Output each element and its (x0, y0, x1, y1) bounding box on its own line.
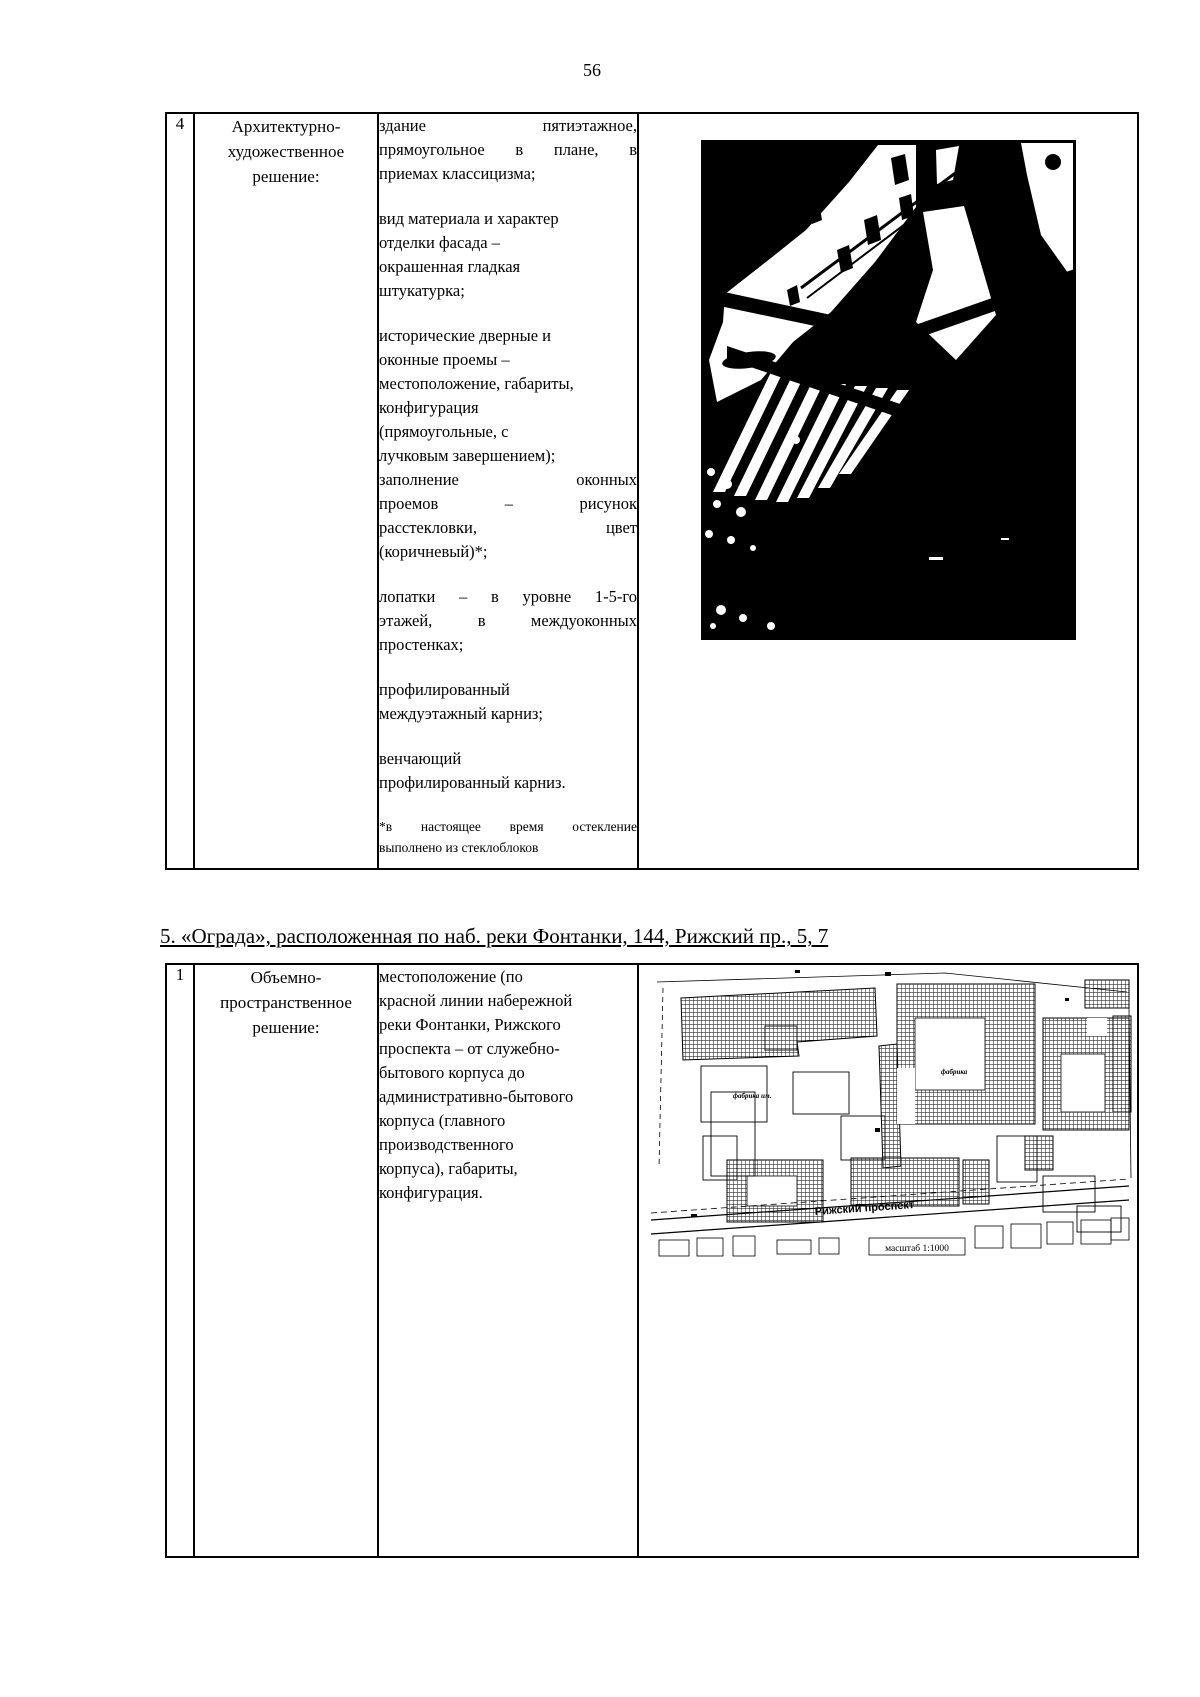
text-line: профилированный (379, 678, 637, 702)
requirements-text-cell: местоположение (покрасной линии набережн… (378, 964, 638, 1557)
text-line: штукатурка; (379, 279, 637, 303)
text-line: решение: (195, 1015, 377, 1040)
text-line: заполнение оконных (379, 468, 637, 492)
paragraph: местоположение (покрасной линии набережн… (379, 965, 637, 1205)
text-line: местоположение, габариты, (379, 372, 637, 396)
paragraph: вид материала и характеротделки фасада –… (379, 207, 637, 303)
text-line: пространственное (195, 990, 377, 1015)
table-row: 4 Архитектурно-художественноерешение: зд… (166, 113, 1138, 869)
text-line: вид материала и характер (379, 207, 637, 231)
row-label-cell: Архитектурно-художественноерешение: (194, 113, 378, 869)
text-line: профилированный карниз. (379, 771, 637, 795)
requirements-paragraphs: здание пятиэтажное,прямоугольное в плане… (379, 114, 637, 795)
text-line: (прямоугольные, с (379, 420, 637, 444)
text-line: здание пятиэтажное, (379, 114, 637, 138)
text-line: конфигурация. (379, 1181, 637, 1205)
text-line: прямоугольное в плане, в (379, 138, 637, 162)
section-heading: 5. «Ограда», расположенная по наб. реки … (160, 924, 828, 949)
text-line: корпуса), габариты, (379, 1157, 637, 1181)
page-number: 56 (0, 60, 1184, 81)
requirements-text-cell: здание пятиэтажное,прямоугольное в плане… (378, 113, 638, 869)
text-line: решение: (195, 164, 377, 189)
text-line: Объемно- (195, 965, 377, 990)
text-line: красной линии набережной (379, 989, 637, 1013)
row-label-cell: Объемно-пространственноерешение: (194, 964, 378, 1557)
text-line: проспекта – от служебно- (379, 1037, 637, 1061)
facade-photo (701, 140, 1076, 640)
text-line: оконные проемы – (379, 348, 637, 372)
text-line: производственного (379, 1133, 637, 1157)
text-line: (коричневый)*; (379, 540, 637, 564)
paragraph: профилированныймеждуэтажный карниз; (379, 678, 637, 726)
text-line: простенках; (379, 633, 637, 657)
building-label-left: фабрика им. (733, 1092, 772, 1100)
row-number-cell: 4 (166, 113, 194, 869)
paragraph: здание пятиэтажное,прямоугольное в плане… (379, 114, 637, 186)
text-line: реки Фонтанки, Рижского (379, 1013, 637, 1037)
photo-cell (638, 113, 1138, 869)
text-line: расстекловки, цвет (379, 516, 637, 540)
table-row: 1 Объемно-пространственноерешение: место… (166, 964, 1138, 1557)
text-line: корпуса (главного (379, 1109, 637, 1133)
text-line: отделки фасада – (379, 231, 637, 255)
text-line: окрашенная гладкая (379, 255, 637, 279)
site-plan-map: Рижский проспект масштаб 1:1000 (645, 968, 1133, 1264)
text-line: административно-бытового (379, 1085, 637, 1109)
text-line: лучковым завершением); (379, 444, 637, 468)
text-line: венчающий (379, 747, 637, 771)
text-line: Архитектурно- (195, 114, 377, 139)
text-line: выполнено из стеклоблоков (379, 837, 637, 858)
footnote: *в настоящее время остеклениевыполнено и… (379, 816, 637, 858)
text-line: исторические дверные и (379, 324, 637, 348)
text-line: проемов – рисунок (379, 492, 637, 516)
map-cell: Рижский проспект масштаб 1:1000 (638, 964, 1138, 1557)
text-line: конфигурация (379, 396, 637, 420)
text-line: лопатки – в уровне 1-5-го (379, 585, 637, 609)
scale-label: масштаб 1:1000 (885, 1243, 949, 1254)
paragraph: исторические дверные иоконные проемы –ме… (379, 324, 637, 564)
document-page: { "page": { "number": "56" }, "colors": … (0, 0, 1200, 1697)
text-line: этажей, в междуоконных (379, 609, 637, 633)
table-architectural-solution: 4 Архитектурно-художественноерешение: зд… (165, 112, 1139, 870)
text-line: художественное (195, 139, 377, 164)
paragraph: венчающийпрофилированный карниз. (379, 747, 637, 795)
text-line: *в настоящее время остекление (379, 816, 637, 837)
row-number-cell: 1 (166, 964, 194, 1557)
table-fence-solution: 1 Объемно-пространственноерешение: место… (165, 963, 1139, 1558)
building-label-center: фабрика (941, 1068, 968, 1076)
text-line: приемах классицизма; (379, 162, 637, 186)
text-line: местоположение (по (379, 965, 637, 989)
text-line: междуэтажный карниз; (379, 702, 637, 726)
paragraph: лопатки – в уровне 1-5-гоэтажей, в между… (379, 585, 637, 657)
text-line: бытового корпуса до (379, 1061, 637, 1085)
